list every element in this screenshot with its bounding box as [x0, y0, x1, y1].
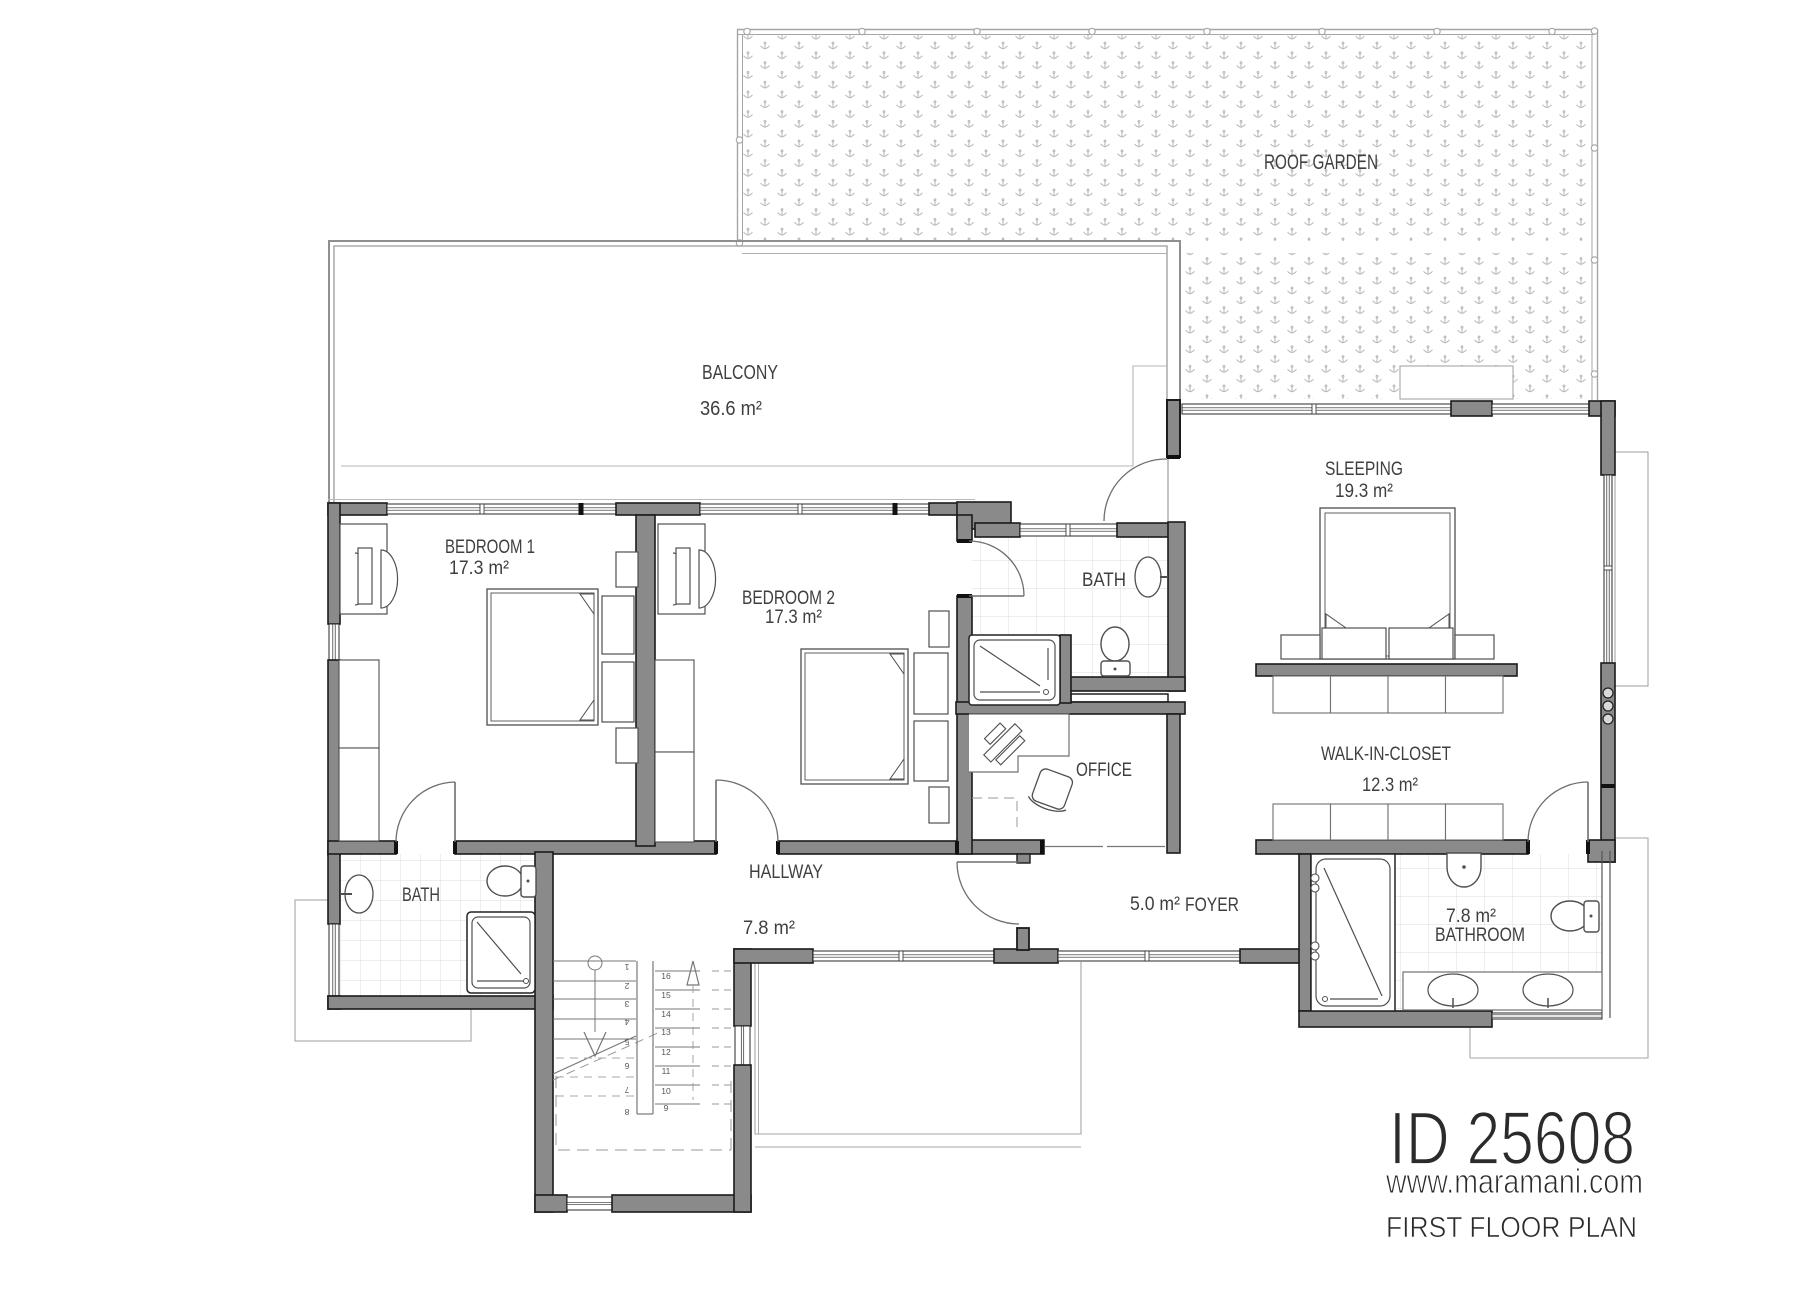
svg-text:3: 3	[624, 999, 629, 1009]
svg-text:8: 8	[624, 1107, 629, 1117]
svg-text:14: 14	[661, 1009, 671, 1019]
svg-text:9: 9	[664, 1103, 669, 1113]
svg-text:6: 6	[624, 1061, 629, 1071]
svg-text:17.3 m²: 17.3 m²	[449, 558, 509, 579]
svg-text:19.3 m²: 19.3 m²	[1335, 481, 1393, 502]
svg-text:ROOF GARDEN: ROOF GARDEN	[1264, 151, 1378, 174]
svg-text:2: 2	[624, 981, 629, 991]
svg-text:16: 16	[661, 971, 671, 981]
svg-text:11: 11	[662, 1066, 671, 1076]
svg-text:OFFICE: OFFICE	[1076, 760, 1132, 781]
svg-text:5.0 m²: 5.0 m²	[1130, 894, 1180, 915]
svg-text:17.3 m²: 17.3 m²	[765, 607, 822, 628]
svg-text:FOYER: FOYER	[1185, 895, 1239, 916]
svg-text:12.3 m²: 12.3 m²	[1362, 775, 1418, 796]
svg-text:5: 5	[624, 1037, 629, 1047]
svg-text:SLEEPING: SLEEPING	[1325, 459, 1403, 480]
svg-text:BATH: BATH	[1082, 570, 1126, 591]
svg-text:4: 4	[624, 1017, 629, 1027]
svg-text:HALLWAY: HALLWAY	[749, 862, 823, 883]
svg-text:BEDROOM 2: BEDROOM 2	[742, 588, 835, 609]
svg-text:1: 1	[624, 962, 629, 972]
svg-text:15: 15	[661, 990, 671, 1000]
svg-text:36.6 m²: 36.6 m²	[700, 398, 762, 420]
svg-text:13: 13	[661, 1027, 671, 1037]
svg-text:FIRST FLOOR PLAN: FIRST FLOOR PLAN	[1386, 1212, 1637, 1244]
svg-text:10: 10	[661, 1086, 671, 1096]
svg-text:7: 7	[624, 1085, 629, 1095]
svg-text:12: 12	[661, 1047, 671, 1057]
svg-text:www.maramani.com: www.maramani.com	[1385, 1163, 1643, 1201]
svg-text:BATH: BATH	[402, 885, 440, 906]
svg-text:BEDROOM 1: BEDROOM 1	[445, 537, 535, 558]
svg-text:BATHROOM: BATHROOM	[1435, 925, 1525, 946]
svg-text:7.8 m²: 7.8 m²	[743, 918, 795, 939]
svg-text:WALK-IN-CLOSET: WALK-IN-CLOSET	[1321, 744, 1451, 765]
svg-text:7.8 m²: 7.8 m²	[1446, 906, 1496, 927]
svg-text:BALCONY: BALCONY	[702, 362, 778, 384]
